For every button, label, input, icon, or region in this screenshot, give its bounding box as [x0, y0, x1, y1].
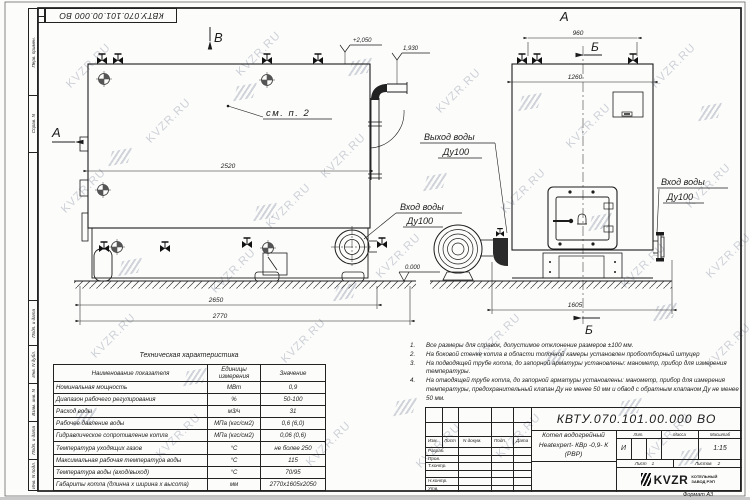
front-view-symbols — [517, 54, 638, 64]
sheet-cell: Лист 1 — [616, 459, 673, 467]
margin-strip: Перв. примен. Справ. N Подп. и дата Инв.… — [28, 8, 38, 491]
spec-table: Наименование показателя Единицы измерени… — [53, 364, 326, 491]
spec-cell: МПа (кгс/см2) — [208, 418, 261, 430]
spec-cell: Температура воды (вход/выход) — [54, 466, 208, 478]
note-text: На подводящей трубе котла, до запорной а… — [426, 360, 740, 378]
spec-cell: МВт — [208, 382, 261, 394]
note-item: 2.На боковой стенке котла в области топо… — [404, 351, 740, 360]
margin-cell: Подп. и дата — [29, 301, 37, 346]
spec-cell: 115 — [261, 454, 326, 466]
spec-row: Гидравлическое сопротивление котлаМПа (к… — [54, 430, 326, 442]
margin-label: Инв. N дубл. — [31, 351, 36, 378]
note-item: 4.На отводящей трубе котла, до запорной … — [404, 377, 740, 403]
spec-cell: м3/ч — [208, 406, 261, 418]
inlet-right-callout: Вход воды Ду100 — [657, 177, 728, 233]
spec-header-row: Наименование показателя Единицы измерени… — [54, 365, 326, 382]
dim-2650: 2650 — [208, 297, 224, 304]
spec-cell: °С — [208, 454, 261, 466]
outlet-callout: Выход воды Ду100 — [420, 132, 507, 233]
note-number: 4. — [404, 377, 426, 403]
spec-table-title: Техническая характеристика — [53, 352, 325, 359]
elevation-marks — [340, 45, 440, 281]
margin-label: Перв. примен. — [31, 37, 36, 68]
margin-cell: Подп. и дата — [29, 422, 37, 460]
rev-col-list: Лист — [444, 439, 456, 444]
inlet-mid-callout: Вход воды Ду100 — [364, 202, 462, 239]
role-utv: Утв. — [428, 487, 438, 492]
doc-number: КВТУ.070.101.00.000 ВО — [531, 408, 742, 430]
inlet-right-label: Вход воды — [661, 177, 705, 187]
rev-col-data: Дата — [516, 439, 528, 444]
inlet-mid-dn: Ду100 — [406, 216, 433, 226]
drawing-sheet: KVZR.RUKVZR.RUKVZR.RUKVZR.RUKVZR.RUKVZR.… — [0, 0, 750, 500]
dim-960: 960 — [573, 30, 584, 37]
note-number: 3. — [404, 360, 426, 378]
spec-cell: 50-100 — [261, 394, 326, 406]
role-prov: Пров. — [428, 457, 440, 462]
note-text: На отводящей трубе котла, до запорной ар… — [426, 377, 740, 403]
section-b-top: Б — [591, 40, 599, 54]
scale-header: Масштаб — [698, 430, 742, 438]
section-b-bottom: Б — [585, 323, 593, 337]
side-view-symbols — [95, 54, 387, 256]
margin-cell — [29, 153, 37, 301]
spec-row: Габариты котла (длинна х ширина х высота… — [54, 478, 326, 490]
note-number: 2. — [404, 351, 426, 360]
margin-cell: Инв. N подл. — [29, 460, 37, 491]
product-name: Котел водогрейный Heatexpert- КВр -0,9- … — [532, 431, 615, 460]
product-name-line2: Heatexpert- КВр -0,9- К (РВР) — [532, 441, 615, 461]
sheet-label: Лист — [635, 461, 647, 466]
spec-cell: Рабочее давление воды — [54, 418, 208, 430]
spec-cell: °С — [208, 466, 261, 478]
kvzr-logo-text: KVZR — [654, 473, 689, 487]
title-block: Изм. Лист N докум. Подп. Дата Разраб. Пр… — [425, 407, 741, 491]
margin-cell: Взам. инв. N — [29, 384, 37, 422]
spec-header: Значение — [261, 365, 326, 382]
lit-header: Лит. — [616, 430, 661, 438]
rev-col-izm: Изм. — [428, 439, 438, 444]
spec-cell: Максимальная рабочая температура воды — [54, 454, 208, 466]
note-item: 3.На подводящей трубе котла, до запорной… — [404, 360, 740, 378]
spec-row: Расход водым3/ч31 — [54, 406, 326, 418]
spec-row: Номинальная мощностьМВт0,9 — [54, 382, 326, 394]
spec-row: Диапазон рабочего регулирования%50-100 — [54, 394, 326, 406]
rev-col-podp: Подп. — [494, 439, 506, 444]
section-v-top: В — [214, 30, 223, 45]
scale-value: 1:15 — [698, 438, 742, 459]
spec-cell: °С — [208, 442, 261, 454]
elevation-pipe: 1,930 — [403, 46, 419, 52]
spec-cell: Габариты котла (длинна х ширина х высота… — [54, 478, 208, 490]
spec-cell: Диапазон рабочего регулирования — [54, 394, 208, 406]
margin-cell: Справ. N — [29, 96, 37, 153]
spec-cell: 0,9 — [261, 382, 326, 394]
spec-header: Наименование показателя — [54, 365, 208, 382]
mass-header: Масса — [661, 430, 698, 438]
kvzr-logo-icon — [641, 473, 651, 486]
side-view-dimensions — [80, 171, 410, 325]
spec-header: Единицы измерения — [208, 365, 261, 382]
spec-cell: 70/95 — [261, 466, 326, 478]
doc-number-stamp: КВТУ.070.101.00.000 ВО — [45, 8, 177, 23]
inlet-right-dn: Ду100 — [666, 192, 693, 202]
spec-cell: Расход воды — [54, 406, 208, 418]
spec-row: Рабочее давление водыМПа (кгс/см2)0,6 (6… — [54, 418, 326, 430]
dim-1605: 1605 — [568, 302, 583, 309]
margin-label: Подп. и дата — [31, 426, 36, 455]
role-razrab: Разраб. — [428, 449, 445, 454]
dim-1260: 1260 — [568, 74, 583, 81]
stamp-mini-cells — [38, 8, 45, 23]
role-tkontr: Т.контр. — [428, 464, 447, 469]
elevation-zero: 0.000 — [405, 265, 421, 271]
see-note-callout: см. п. 2 — [227, 105, 332, 119]
spec-cell: Номинальная мощность — [54, 382, 208, 394]
note-number: 1. — [404, 342, 426, 351]
role-nkontr: Н.контр. — [428, 479, 447, 484]
spec-cell: не более 250 — [261, 442, 326, 454]
spec-cell: мм — [208, 478, 261, 490]
spec-row: Температура уходящих газов°Сне более 250 — [54, 442, 326, 454]
spec-row: Максимальная рабочая температура воды°С1… — [54, 454, 326, 466]
spec-cell: 0,6 (6,0) — [261, 418, 326, 430]
outlet-label: Выход воды — [424, 132, 475, 142]
see-note-text: см. п. 2 — [266, 108, 310, 119]
spec-cell: 2770х1605х2050 — [261, 478, 326, 490]
margin-label: Подп. и дата — [31, 309, 36, 338]
product-name-line1: Котел водогрейный — [532, 431, 615, 441]
company-cell: KVZR КОТЕЛЬНЫЙ ЗАВОД РЭП — [616, 467, 742, 492]
margin-label: Инв. N подл. — [31, 462, 36, 489]
spec-cell: МПа (кгс/см2) — [208, 430, 261, 442]
sheets-cell: Листов 2 — [673, 459, 742, 467]
spec-cell: 31 — [261, 406, 326, 418]
rev-col-docnum: N докум. — [463, 439, 482, 444]
sheets-label: Листов — [695, 461, 712, 466]
sheet-value: 1 — [652, 461, 655, 466]
lit-value: И — [616, 438, 631, 459]
sheets-value: 2 — [718, 461, 721, 466]
spec-cell: % — [208, 394, 261, 406]
dim-2520: 2520 — [220, 163, 236, 170]
company-name: КОТЕЛЬНЫЙ ЗАВОД РЭП — [691, 475, 717, 485]
note-text: На боковой стенке котла в области топочн… — [426, 351, 740, 360]
note-text: Все размеры для справок, допустимое откл… — [426, 342, 740, 351]
margin-label: Взам. инв. N — [31, 389, 36, 416]
side-view — [74, 64, 416, 289]
outlet-dn: Ду100 — [442, 147, 469, 157]
front-view — [486, 46, 672, 324]
section-a-left: А — [51, 125, 61, 140]
view-a-top: А — [559, 9, 569, 24]
notes-list: 1.Все размеры для справок, допустимое от… — [404, 342, 740, 404]
elevation-top: +2,050 — [353, 38, 372, 44]
margin-cell: Инв. N дубл. — [29, 346, 37, 384]
note-item: 1.Все размеры для справок, допустимое от… — [404, 342, 740, 351]
dim-2770: 2770 — [212, 313, 228, 320]
spec-cell: 0,06 (0,6) — [261, 430, 326, 442]
doc-number-stamp-text: КВТУ.070.101.00.000 ВО — [59, 11, 164, 21]
company-name-line2: ЗАВОД РЭП — [691, 480, 717, 485]
margin-cell: Перв. примен. — [29, 9, 37, 96]
spec-cell: Гидравлическое сопротивление котла — [54, 430, 208, 442]
spec-cell: Температура уходящих газов — [54, 442, 208, 454]
margin-label: Справ. N — [31, 114, 36, 133]
inlet-mid-label: Вход воды — [400, 202, 444, 212]
spec-row: Температура воды (вход/выход)°С70/95 — [54, 466, 326, 478]
